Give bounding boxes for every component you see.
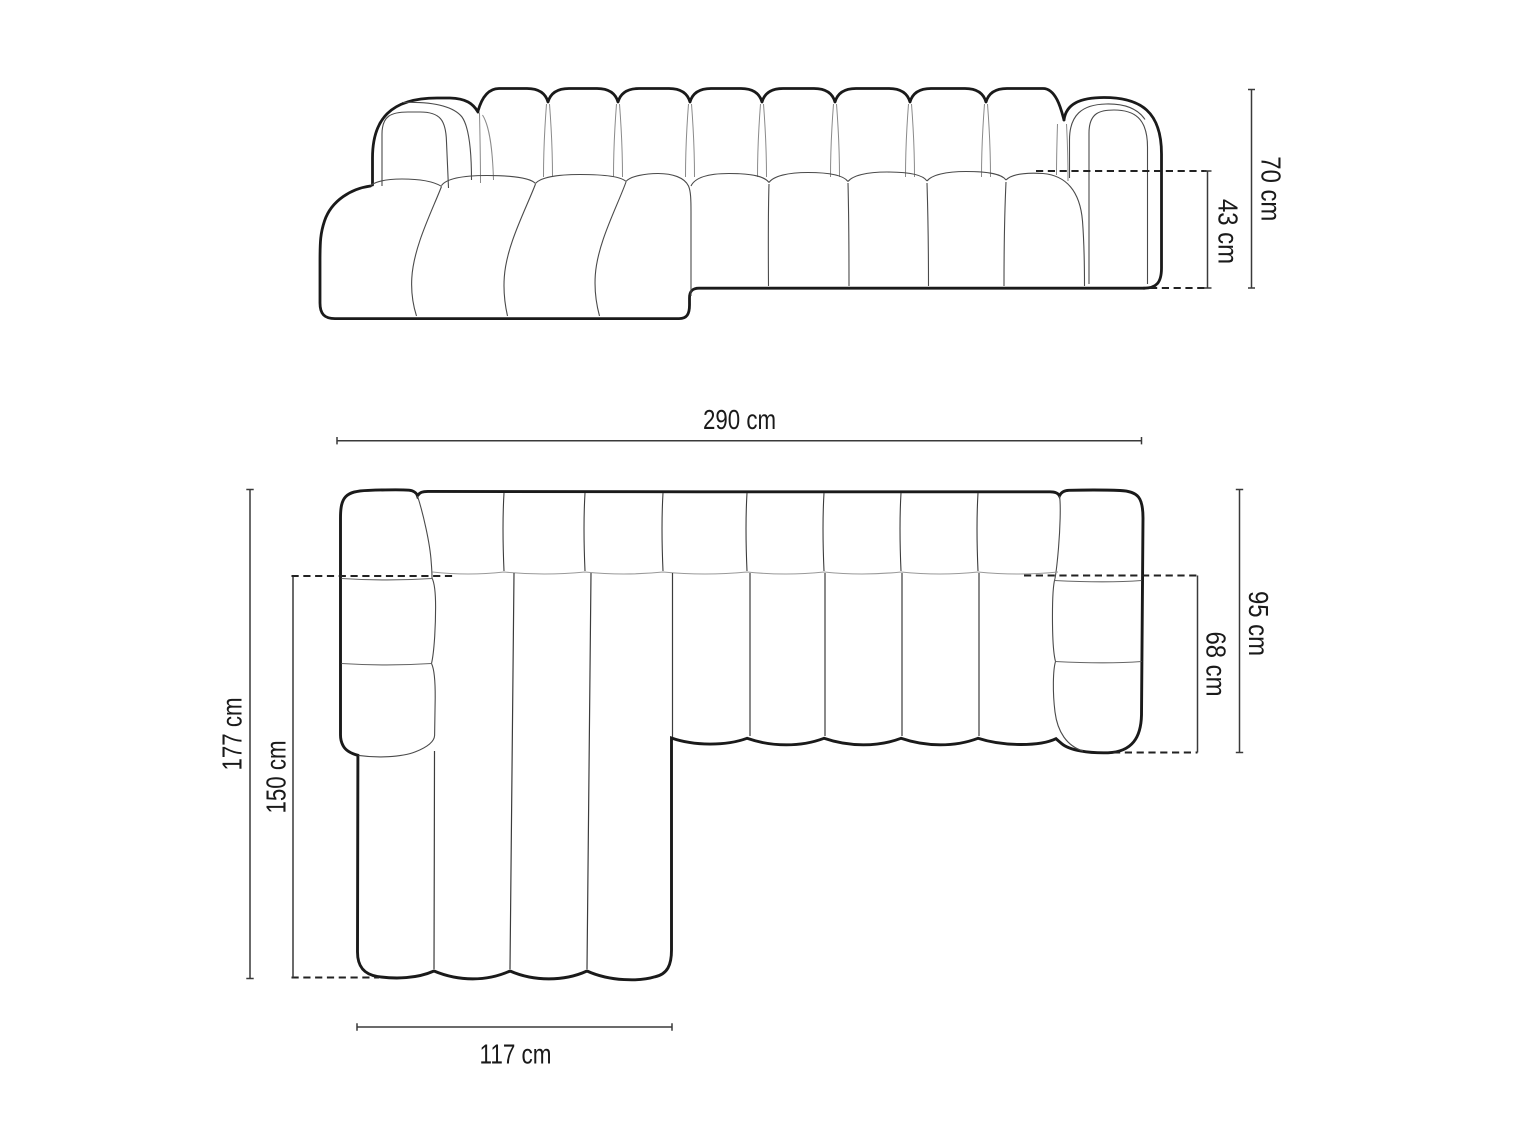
svg-text:70 cm: 70 cm (1256, 156, 1287, 221)
svg-text:117 cm: 117 cm (480, 1039, 552, 1070)
svg-text:150 cm: 150 cm (261, 741, 292, 814)
svg-text:177 cm: 177 cm (217, 698, 248, 771)
svg-text:43 cm: 43 cm (1213, 199, 1244, 264)
svg-text:95 cm: 95 cm (1243, 591, 1274, 656)
svg-text:68 cm: 68 cm (1201, 632, 1232, 697)
svg-text:290 cm: 290 cm (703, 404, 776, 435)
